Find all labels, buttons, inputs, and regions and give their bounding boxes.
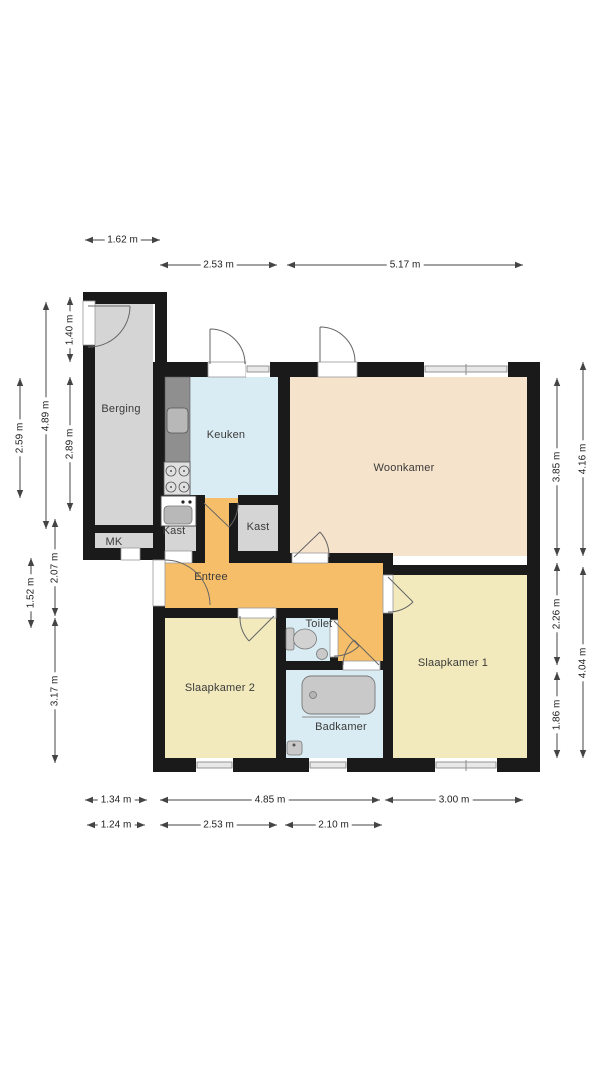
entree-floor-hall [165, 556, 383, 610]
floorplan-canvas: BergingMKKeukenWoonkamerKastKastEntreeTo… [0, 0, 600, 1067]
wall-main-right [527, 362, 540, 772]
wall-kast-right-left [229, 503, 238, 553]
woonkamer-window [424, 362, 508, 377]
wall-kast-right-top [238, 495, 290, 505]
slaapkamer2-window [196, 758, 233, 772]
wall-keuken-woonkamer [278, 377, 290, 563]
badkamer-window [309, 758, 347, 772]
bathtub [302, 676, 375, 717]
kitchen-stove [164, 462, 190, 495]
badkamer-basin [287, 741, 302, 755]
washer [161, 496, 196, 526]
slaapkamer2-door [238, 608, 276, 618]
wall-mk-top [95, 525, 153, 533]
slaapkamer2-floor [165, 618, 276, 758]
kast-left-door [165, 551, 192, 563]
toilet-door [330, 620, 338, 657]
keuken-balcony-door-swing [210, 329, 245, 364]
mk-door [121, 548, 140, 560]
woonkamer-balcony-door-swing [320, 327, 355, 362]
keuken-window [246, 362, 270, 377]
keuken-balcony-door [208, 362, 246, 377]
wall-berging-top [83, 292, 167, 304]
woonkamer-door [292, 553, 328, 563]
kitchen-sink [167, 408, 188, 433]
wall-slaapkamer1-top [388, 565, 527, 575]
berging-floor [95, 304, 153, 550]
wall-slaapkamer2-right [276, 608, 286, 758]
kast-right-floor [238, 505, 278, 553]
woonkamer-floor [290, 377, 527, 556]
front-door [153, 560, 165, 606]
floorplan-drawing [0, 0, 600, 1067]
badkamer-door [343, 661, 380, 670]
woonkamer-balcony-door [318, 362, 357, 377]
berging-door [83, 301, 95, 345]
slaapkamer1-window [435, 758, 497, 772]
